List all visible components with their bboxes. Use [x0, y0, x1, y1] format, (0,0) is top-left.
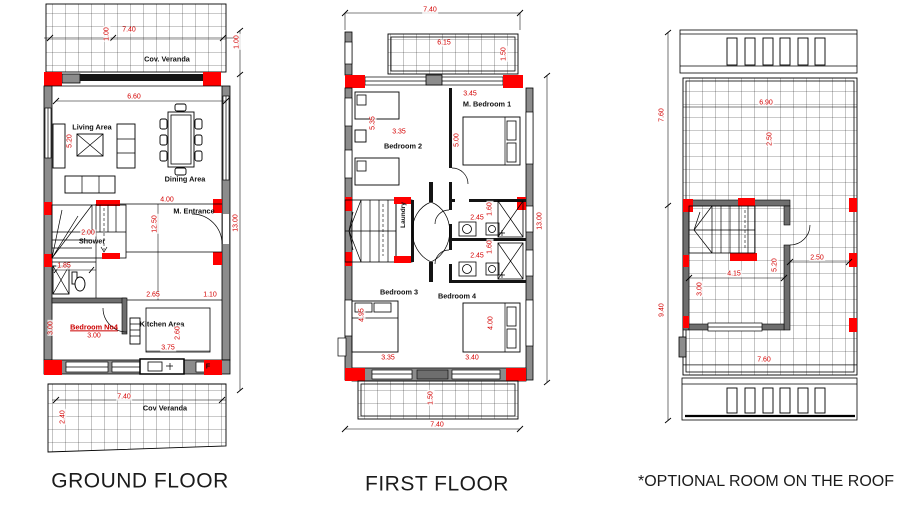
label-bedroom2: Bedroom 2 — [384, 142, 422, 149]
dim-ground-bed4-h: 3.00 — [48, 320, 55, 336]
dim-ground-total-height: 13.00 — [233, 213, 240, 233]
dim-ground-veranda-depth-b: 1.00 — [234, 34, 241, 50]
dim-first-balcony-bottom-d: 1.50 — [428, 390, 435, 406]
dim-first-bed2-h: 5.35 — [370, 115, 377, 131]
first-floor-drawing — [338, 10, 550, 432]
dim-first-bath2-d: 1.60 — [487, 239, 494, 255]
dim-roof-room-w: 4.15 — [726, 271, 742, 278]
dim-first-bed3-w: 3.35 — [380, 355, 396, 362]
dim-first-bed2-w: 3.35 — [391, 129, 407, 136]
dim-roof-lower-h: 9.40 — [659, 302, 666, 318]
dim-first-top-width: 7.40 — [422, 7, 438, 14]
dim-ground-inner-height: 12.50 — [152, 214, 159, 234]
roof-plan-drawing — [665, 30, 857, 423]
dim-first-bed3-h: 4.95 — [359, 307, 366, 323]
label-ground-veranda-bottom: Cov Veranda — [143, 404, 187, 411]
dim-ground-living-width: 6.60 — [126, 94, 142, 101]
label-living-area: Living Area — [72, 123, 111, 130]
dim-ground-kitchen-h: 2.60 — [175, 325, 182, 341]
floorplan-drawing — [0, 0, 919, 510]
dim-first-bed4-w: 3.40 — [464, 355, 480, 362]
dim-roof-side-w: 2.50 — [809, 255, 825, 262]
dim-roof-terrace-d: 2.50 — [767, 131, 774, 147]
roof-plan-title: *OPTIONAL ROOM ON THE ROOF — [638, 474, 894, 490]
label-mbedroom1: M. Bedroom 1 — [463, 100, 511, 107]
dim-ground-pass-a: 2.65 — [145, 292, 161, 299]
dim-roof-bottom-w: 7.60 — [756, 357, 772, 364]
dim-first-bath1-d: 1.60 — [487, 201, 494, 217]
dim-ground-veranda-depth-a: 1.00 — [104, 26, 111, 42]
dim-ground-kitchen-w: 3.75 — [160, 345, 176, 352]
ground-floor-title: GROUND FLOOR — [51, 471, 229, 492]
dim-first-mbed1-h: 5.00 — [454, 132, 461, 148]
label-fridge: F — [206, 362, 210, 369]
label-laundry: Laundry — [401, 202, 408, 228]
label-bedroom3: Bedroom 3 — [380, 288, 418, 295]
dim-ground-top-width: 7.40 — [121, 27, 137, 34]
label-bedroom-no4: Bedroom No4 — [70, 323, 118, 330]
dim-first-bath2-w: 2.45 — [469, 253, 485, 260]
dim-roof-room-side: 5.20 — [772, 257, 779, 273]
dim-roof-terrace-w: 6.90 — [758, 100, 774, 107]
label-dining-area: Dining Area — [165, 175, 206, 182]
dim-roof-upper-h: 7.60 — [659, 107, 666, 123]
dim-first-balcony-w: 6.15 — [436, 40, 452, 47]
dim-ground-bottom-width: 7.40 — [116, 394, 132, 401]
label-ground-veranda-top: Cov. Veranda — [144, 55, 190, 62]
label-first-bedroom4: Bedroom 4 — [438, 292, 476, 299]
floorplan-sheet: 7.40 1.00 1.00 Cov. Veranda 6.60 5.20 Li… — [0, 0, 919, 510]
dim-ground-bed4-w: 3.00 — [86, 333, 102, 340]
first-floor-title: FIRST FLOOR — [365, 474, 509, 495]
dim-first-bed4-h: 4.00 — [488, 315, 495, 331]
label-shower: Shower — [79, 237, 105, 244]
dim-first-total-height: 13.00 — [537, 211, 544, 231]
dim-ground-veranda-bottom-depth: 2.40 — [60, 409, 67, 425]
dim-ground-pass-b: 1.10 — [202, 292, 218, 299]
label-main-entrance: M. Entrance — [173, 207, 214, 214]
dim-first-balcony-d: 1.50 — [501, 46, 508, 62]
dim-first-bottom-width: 7.40 — [429, 422, 445, 429]
dim-ground-living-height: 5.20 — [67, 133, 74, 149]
ground-floor-drawing — [44, 4, 243, 452]
dim-first-mbed1-w: 3.45 — [462, 91, 478, 98]
dim-ground-wc: 1.85 — [56, 263, 72, 270]
dim-roof-room-h: 3.00 — [697, 281, 704, 297]
dim-ground-hall-width: 4.00 — [159, 197, 175, 204]
dim-first-bath1-w: 2.45 — [469, 215, 485, 222]
